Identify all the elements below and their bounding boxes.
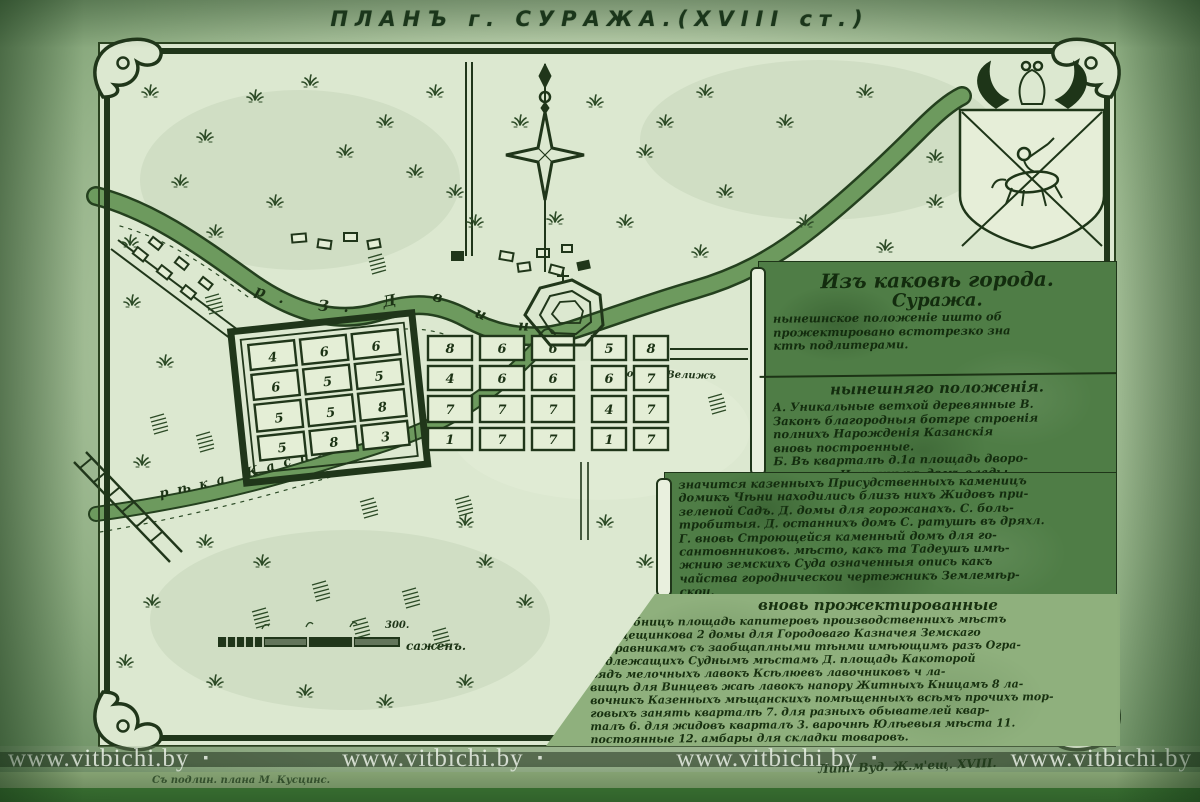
bullet-separator-icon: ▪	[538, 751, 544, 767]
svg-text:5: 5	[274, 411, 285, 427]
svg-text:6: 6	[371, 339, 382, 355]
svg-text:1: 1	[445, 433, 454, 448]
svg-text:8: 8	[646, 342, 655, 357]
legend-panel-main: Изъ каковѣ города. Суража. нынешнское по…	[758, 261, 1117, 482]
legend-section-title: Изъ каковѣ города. Суража. нынешнское по…	[758, 260, 1116, 378]
svg-text:8: 8	[377, 400, 388, 416]
svg-text:7: 7	[646, 372, 655, 387]
svg-text:5: 5	[277, 441, 288, 457]
svg-text:6: 6	[497, 342, 506, 357]
svg-text:7: 7	[646, 433, 655, 448]
bullet-separator-icon: ▪	[203, 751, 209, 767]
svg-text:7: 7	[497, 403, 506, 418]
svg-text:4: 4	[445, 372, 454, 387]
svg-text:6: 6	[604, 372, 613, 387]
map-title: ПЛАНЪ г. СУРАЖА.(XVIII ст.)	[0, 7, 1200, 31]
svg-text:5: 5	[326, 405, 337, 421]
svg-text:6: 6	[497, 372, 506, 387]
svg-text:7: 7	[445, 403, 454, 418]
svg-text:4: 4	[604, 403, 613, 418]
scanned-map-page: { "title": "ПЛАНЪ г. СУРАЖА.(XVIII ст.)"…	[0, 0, 1200, 802]
legend-section-current-state: нынешняго положенія. А. Уникальные ветхо…	[758, 374, 1116, 484]
svg-text:6: 6	[319, 345, 330, 361]
watermark-text: www.vitbichi.by▪	[8, 745, 209, 773]
signature-left: Съ подлин. плана М. Кусцинс.	[152, 775, 330, 786]
svg-text:5: 5	[374, 369, 385, 385]
legend-line: ктѣ подлитерами.	[759, 336, 1116, 353]
svg-text:8: 8	[329, 435, 340, 451]
svg-text:7: 7	[497, 433, 506, 448]
scale-value: 300.	[385, 620, 409, 631]
svg-text:8: 8	[445, 342, 454, 357]
svg-text:7: 7	[548, 433, 557, 448]
svg-text:5: 5	[604, 342, 613, 357]
legend-section-header: нынешняго положенія.	[758, 377, 1115, 400]
bottom-strip-dark	[0, 788, 1200, 802]
svg-text:6: 6	[271, 380, 282, 396]
svg-text:7: 7	[548, 403, 557, 418]
legend-panel-descriptions: значится казенныхъ Присудственныхъ камен…	[664, 472, 1117, 603]
scale-unit: саженъ.	[406, 639, 466, 653]
watermark-text: www.vitbichi.by▪	[1011, 745, 1192, 773]
watermark-text: www.vitbichi.by▪	[342, 745, 543, 773]
svg-text:4: 4	[267, 350, 278, 366]
svg-text:7: 7	[646, 403, 655, 418]
svg-text:5: 5	[322, 375, 333, 391]
svg-text:6: 6	[548, 372, 557, 387]
watermark-band: www.vitbichi.by▪ www.vitbichi.by▪ www.vi…	[0, 746, 1200, 772]
svg-text:1: 1	[604, 433, 613, 448]
svg-text:3: 3	[380, 430, 391, 446]
